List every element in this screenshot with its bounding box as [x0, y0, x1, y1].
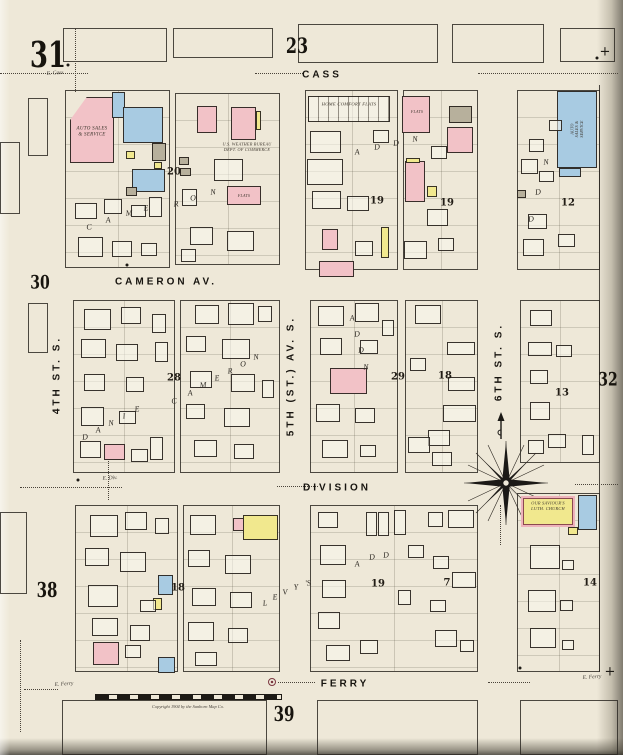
building-footprint	[517, 190, 526, 198]
building-footprint	[415, 305, 441, 324]
edge-block-outline	[520, 700, 618, 755]
building-footprint	[530, 628, 556, 648]
block-number: 29	[391, 372, 405, 383]
addition-letter: D	[535, 187, 542, 197]
addition-letter: N	[253, 352, 259, 362]
building-footprint	[428, 430, 450, 446]
section-dotted-line	[20, 640, 21, 732]
building-footprint	[382, 320, 394, 336]
building-footprint	[225, 555, 251, 574]
addition-letter: D	[393, 138, 400, 148]
building-footprint	[258, 306, 272, 322]
building-footprint	[530, 402, 550, 420]
building-footprint	[81, 407, 104, 426]
building-footprint	[188, 550, 210, 567]
edge-block-outline	[317, 700, 478, 755]
edge-block-outline	[28, 303, 48, 353]
addition-letter: 'S	[305, 578, 312, 588]
building-footprint	[155, 518, 169, 534]
street-continuation-note: E. Cass	[46, 69, 63, 76]
building-footprint	[322, 229, 338, 250]
building-footprint	[549, 120, 562, 131]
building-footprint	[404, 241, 427, 259]
street-label-cameron-av-: CAMERON AV.	[115, 277, 217, 288]
building-footprint	[228, 303, 254, 325]
building-footprint	[528, 342, 552, 356]
building-footprint	[243, 515, 278, 540]
section-dotted-line	[75, 28, 76, 92]
street-label-cass: CASS	[302, 70, 342, 81]
building-label: AUTO SALES & SERVICE	[77, 125, 108, 137]
street-label-5th-st-av-s-: 5TH (ST.) AV. S.	[286, 316, 297, 436]
building-footprint	[180, 168, 191, 176]
building-footprint	[85, 548, 109, 566]
building-footprint	[222, 339, 250, 359]
building-footprint	[88, 585, 118, 607]
edge-block-outline	[173, 28, 273, 58]
building-footprint	[140, 600, 156, 612]
street-label-ferry: FERRY	[321, 679, 370, 690]
building-footprint	[112, 241, 132, 257]
sheet-number: 32	[598, 371, 617, 390]
building-footprint	[197, 106, 217, 133]
building-footprint	[227, 231, 254, 251]
building-footprint	[460, 640, 474, 652]
building-label: OUR SAVIOUR'S LUTH. CHURCH	[530, 501, 566, 511]
building-footprint	[84, 374, 105, 391]
edge-block-outline	[452, 24, 544, 63]
building-footprint	[121, 307, 141, 324]
block-number: 7	[444, 578, 451, 589]
building-footprint	[310, 131, 341, 153]
building-footprint	[528, 440, 544, 454]
building-footprint	[558, 234, 575, 247]
addition-letter: E	[214, 373, 220, 382]
addition-letter: D	[82, 432, 89, 442]
building-footprint	[224, 408, 250, 427]
building-footprint	[406, 158, 420, 163]
building-footprint	[427, 209, 448, 226]
street-continuation-note: E. Ferry	[582, 673, 601, 680]
building-footprint	[190, 227, 213, 245]
building-label: FLATS	[238, 194, 250, 199]
building-footprint	[398, 590, 411, 605]
building-footprint	[448, 510, 474, 528]
section-dotted-line	[255, 73, 303, 74]
building-footprint	[125, 512, 147, 530]
addition-letter: I	[122, 411, 126, 420]
building-footprint	[326, 645, 350, 661]
block-number: 18	[171, 583, 185, 594]
addition-letter: D	[528, 214, 535, 224]
sheet-number: 30	[30, 274, 49, 293]
addition-letter: A	[354, 147, 360, 156]
building-footprint	[104, 444, 125, 460]
building-footprint	[150, 437, 163, 460]
building-footprint	[152, 314, 166, 333]
building-footprint	[408, 545, 424, 558]
building-footprint	[126, 377, 144, 392]
building-footprint	[126, 187, 137, 196]
building-footprint	[433, 556, 449, 569]
building-footprint	[428, 512, 443, 527]
building-footprint	[405, 161, 425, 202]
addition-letter: N	[412, 134, 418, 144]
building-footprint	[582, 435, 594, 455]
block-number: 20	[167, 167, 181, 178]
building-footprint	[355, 241, 373, 256]
block-number: 19	[440, 198, 454, 209]
building-footprint	[449, 106, 472, 123]
building-footprint	[194, 440, 217, 457]
building-footprint	[234, 444, 254, 459]
edge-block-outline	[0, 142, 20, 214]
survey-dot	[596, 57, 599, 60]
building-footprint	[228, 628, 248, 643]
addition-letter: D	[358, 345, 365, 355]
survey-dot	[126, 264, 129, 267]
building-footprint	[312, 191, 341, 209]
addition-letter: A	[105, 215, 111, 224]
sheet-number: 39	[274, 705, 295, 725]
building-footprint	[316, 404, 340, 422]
building-footprint	[355, 303, 379, 322]
sanborn-map-sheet: Copyright 1904 by the Sanborn Map Co. CA…	[0, 0, 623, 755]
addition-letter: D	[354, 329, 361, 339]
sheet-number: 31	[30, 38, 66, 73]
addition-letter: L	[262, 598, 267, 607]
building-footprint	[435, 630, 457, 647]
building-footprint	[432, 452, 452, 466]
building-footprint	[366, 512, 377, 536]
building-footprint	[155, 342, 168, 362]
building-footprint	[381, 227, 389, 258]
building-footprint	[126, 151, 135, 159]
building-footprint	[81, 339, 106, 358]
section-dotted-line	[20, 487, 122, 488]
building-footprint	[125, 645, 141, 658]
addition-letter: M	[125, 208, 133, 218]
building-footprint	[402, 96, 430, 133]
block-number: 14	[583, 578, 597, 589]
building-footprint	[539, 171, 554, 182]
building-footprint	[123, 107, 163, 143]
building-footprint	[116, 344, 138, 361]
addition-letter: A	[95, 425, 101, 434]
building-footprint	[318, 512, 338, 528]
building-footprint	[378, 512, 389, 536]
building-footprint	[80, 441, 101, 458]
building-footprint	[355, 408, 375, 423]
building-footprint	[120, 552, 146, 572]
addition-letter: A	[187, 388, 193, 397]
building-footprint	[195, 652, 217, 666]
addition-letter: R	[173, 199, 179, 208]
addition-letter: A	[349, 313, 355, 322]
building-footprint	[447, 342, 475, 355]
building-footprint	[307, 159, 343, 185]
building-footprint	[230, 592, 252, 608]
building-footprint	[530, 545, 560, 569]
addition-letter: N	[363, 362, 369, 372]
street-label-division: DIVISION	[303, 483, 371, 494]
building-footprint	[523, 239, 544, 256]
street-continuation-note: E. Ferry	[54, 680, 73, 687]
building-footprint	[568, 527, 578, 535]
sheet-number: 23	[286, 35, 308, 57]
block-number: 12	[561, 198, 575, 209]
section-dotted-line	[24, 689, 58, 690]
building-label: FLATS	[411, 110, 423, 115]
addition-letter: N	[543, 157, 549, 167]
building-footprint	[447, 127, 473, 153]
building-footprint	[330, 368, 367, 394]
building-footprint	[528, 590, 556, 612]
addition-letter: C	[171, 396, 177, 406]
building-footprint	[548, 434, 566, 448]
building-footprint	[562, 640, 574, 650]
page-left-margin	[0, 0, 10, 755]
addition-letter: D	[374, 142, 381, 152]
building-footprint	[75, 203, 97, 219]
building-footprint	[427, 186, 437, 197]
building-footprint	[521, 159, 538, 174]
building-footprint	[430, 600, 446, 612]
building-footprint	[214, 159, 243, 181]
building-label: U.S. WEATHER BUREAU DEPT. OF COMMERCE	[222, 142, 271, 152]
building-footprint	[320, 338, 342, 355]
building-footprint	[360, 445, 376, 457]
addition-letter: V	[282, 587, 288, 596]
building-footprint	[149, 197, 162, 217]
building-footprint	[318, 306, 344, 326]
section-dotted-line	[278, 682, 315, 683]
building-footprint	[320, 545, 346, 565]
building-footprint	[438, 238, 454, 251]
building-footprint	[190, 515, 216, 535]
building-footprint	[181, 249, 196, 262]
addition-letter: E	[143, 203, 149, 212]
building-footprint	[560, 600, 573, 611]
building-footprint	[256, 111, 261, 130]
building-footprint	[322, 440, 348, 458]
building-footprint	[92, 618, 118, 636]
building-footprint	[559, 168, 581, 177]
street-label-4th-st-s-: 4TH ST. S.	[52, 336, 63, 414]
edge-block-outline	[63, 28, 167, 62]
edge-block-outline	[0, 512, 27, 594]
building-footprint	[431, 146, 447, 159]
edge-block-outline	[28, 98, 48, 156]
building-footprint	[578, 495, 597, 530]
north-arrow-icon	[493, 412, 509, 440]
addition-letter: N	[108, 418, 114, 428]
building-label: HOME COMFORT FLATS	[322, 101, 377, 107]
building-footprint	[78, 237, 103, 257]
building-footprint	[154, 162, 162, 169]
survey-dot	[77, 479, 80, 482]
building-footprint	[104, 199, 122, 214]
addition-letter: R	[227, 366, 233, 375]
building-footprint	[93, 642, 119, 665]
building-footprint	[231, 374, 255, 392]
addition-letter: N	[210, 187, 216, 197]
building-footprint	[186, 336, 206, 352]
edge-block-outline	[62, 700, 267, 755]
building-footprint	[84, 309, 111, 330]
building-footprint	[186, 404, 205, 419]
building-footprint	[179, 157, 189, 165]
building-footprint	[319, 261, 354, 277]
building-footprint	[373, 130, 389, 143]
addition-letter: O	[240, 359, 247, 369]
building-footprint	[448, 377, 475, 391]
block-number: 13	[555, 388, 569, 399]
building-footprint	[443, 405, 476, 422]
building-footprint	[130, 625, 150, 641]
building-footprint	[360, 640, 378, 654]
building-footprint	[188, 622, 214, 641]
building-footprint	[318, 612, 340, 629]
building-footprint	[394, 510, 406, 535]
section-dotted-line	[478, 73, 618, 74]
plus-mark: +	[600, 45, 611, 60]
building-footprint	[408, 437, 430, 453]
addition-letter: M	[199, 380, 207, 390]
building-footprint	[347, 196, 369, 211]
building-footprint	[530, 370, 548, 384]
building-footprint	[308, 96, 390, 122]
building-footprint	[90, 515, 118, 537]
hydrant-marker-icon	[268, 678, 276, 686]
building-footprint	[556, 345, 572, 357]
addition-letter: O	[190, 193, 197, 203]
building-footprint	[452, 572, 476, 588]
addition-letter: E	[272, 592, 278, 601]
addition-letter: D	[383, 550, 390, 560]
building-footprint	[529, 139, 544, 152]
building-footprint	[410, 358, 426, 371]
building-footprint	[131, 449, 148, 462]
building-footprint	[158, 657, 175, 673]
addition-letter: D	[369, 552, 376, 562]
addition-letter: A	[354, 559, 360, 568]
street-label-6th-st-s-: 6TH ST. S.	[494, 323, 505, 401]
building-label: AUTO SALES & SERVICE	[570, 119, 584, 139]
block-number: 28	[167, 373, 181, 384]
section-dotted-line	[500, 505, 501, 545]
street-continuation-note: E. Div.	[102, 474, 117, 481]
building-footprint	[231, 107, 256, 140]
section-dotted-line	[488, 682, 530, 683]
block-number: 18	[438, 371, 452, 382]
plus-mark: +	[605, 665, 616, 680]
building-footprint	[530, 310, 552, 326]
building-footprint	[141, 243, 157, 256]
section-dotted-line	[575, 484, 618, 485]
block-number: 19	[370, 196, 384, 207]
edge-block-outline	[298, 24, 438, 63]
building-footprint	[562, 560, 574, 570]
block-number: 19	[371, 579, 385, 590]
building-footprint	[195, 305, 219, 324]
survey-dot	[67, 64, 70, 67]
building-footprint	[192, 588, 216, 606]
addition-letter: C	[86, 222, 92, 232]
building-footprint	[152, 143, 166, 161]
addition-letter: Y	[293, 582, 298, 591]
addition-letter: E	[134, 404, 140, 413]
survey-dot	[519, 667, 522, 670]
sheet-number: 38	[37, 581, 58, 601]
building-footprint	[322, 580, 346, 598]
building-footprint	[262, 380, 274, 398]
